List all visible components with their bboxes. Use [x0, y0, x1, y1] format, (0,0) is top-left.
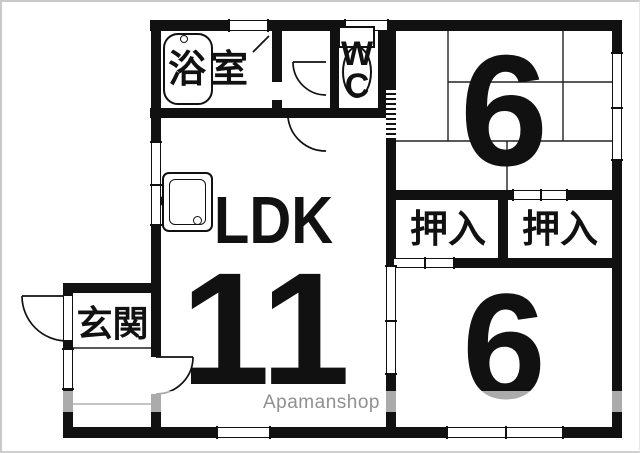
- wc-label-c: C: [338, 67, 376, 105]
- wall: [63, 427, 216, 438]
- ldk-size-label: 11: [163, 258, 368, 400]
- wall: [386, 140, 396, 265]
- closet-sliding-door: [392, 258, 455, 268]
- floor-plan: 浴室 W C 玄関 LDK 11 6 6 押入 押入 Apamanshop: [0, 0, 640, 453]
- bedroom-north-size-label: 6: [396, 32, 612, 190]
- wall: [272, 20, 282, 82]
- closet-east-label: 押入: [510, 204, 610, 256]
- bathtub-drain-icon: [180, 35, 188, 43]
- wall: [568, 190, 622, 200]
- window-marker: [151, 141, 161, 226]
- room-sliding-door: [386, 265, 396, 375]
- window-marker: [612, 52, 622, 161]
- wall: [63, 283, 73, 295]
- wall: [271, 427, 446, 438]
- wall: [150, 108, 396, 118]
- watermark-text: Apamanshop: [263, 392, 380, 414]
- hall-door-arc: [288, 118, 326, 151]
- wall: [150, 20, 228, 31]
- front-door-arc: [22, 296, 67, 341]
- hatched-partition: [386, 88, 396, 140]
- wall: [63, 283, 160, 293]
- entrance-side-window: [63, 348, 73, 390]
- wc-door-arc: [293, 62, 326, 95]
- entrance-label: 玄関: [70, 302, 155, 346]
- wall: [272, 100, 282, 108]
- bathroom-label: 浴室: [160, 46, 260, 94]
- window-marker: [216, 427, 271, 438]
- closet-west-label: 押入: [398, 204, 498, 256]
- wall: [612, 20, 622, 52]
- window-marker: [228, 20, 269, 31]
- wall: [498, 200, 508, 258]
